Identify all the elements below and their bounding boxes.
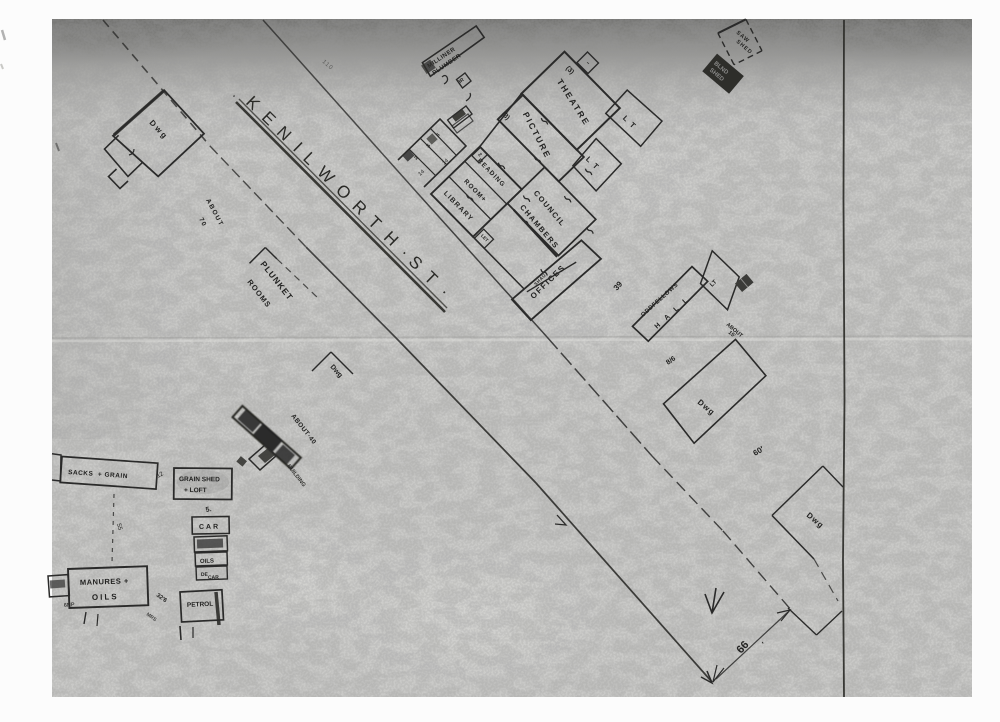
svg-text:CAR: CAR (208, 575, 219, 581)
svg-text:CAR: CAR (199, 524, 220, 531)
svg-text:PETROL: PETROL (187, 601, 214, 609)
svg-text:+ LOFT: + LOFT (184, 487, 207, 494)
svg-text:GRAIN SHED: GRAIN SHED (179, 476, 220, 483)
svg-text:MANURES +: MANURES + (80, 576, 129, 587)
svg-text:OILS: OILS (200, 559, 214, 565)
svg-text:OILS: OILS (92, 592, 119, 602)
svg-text:6NP: 6NP (64, 602, 76, 609)
